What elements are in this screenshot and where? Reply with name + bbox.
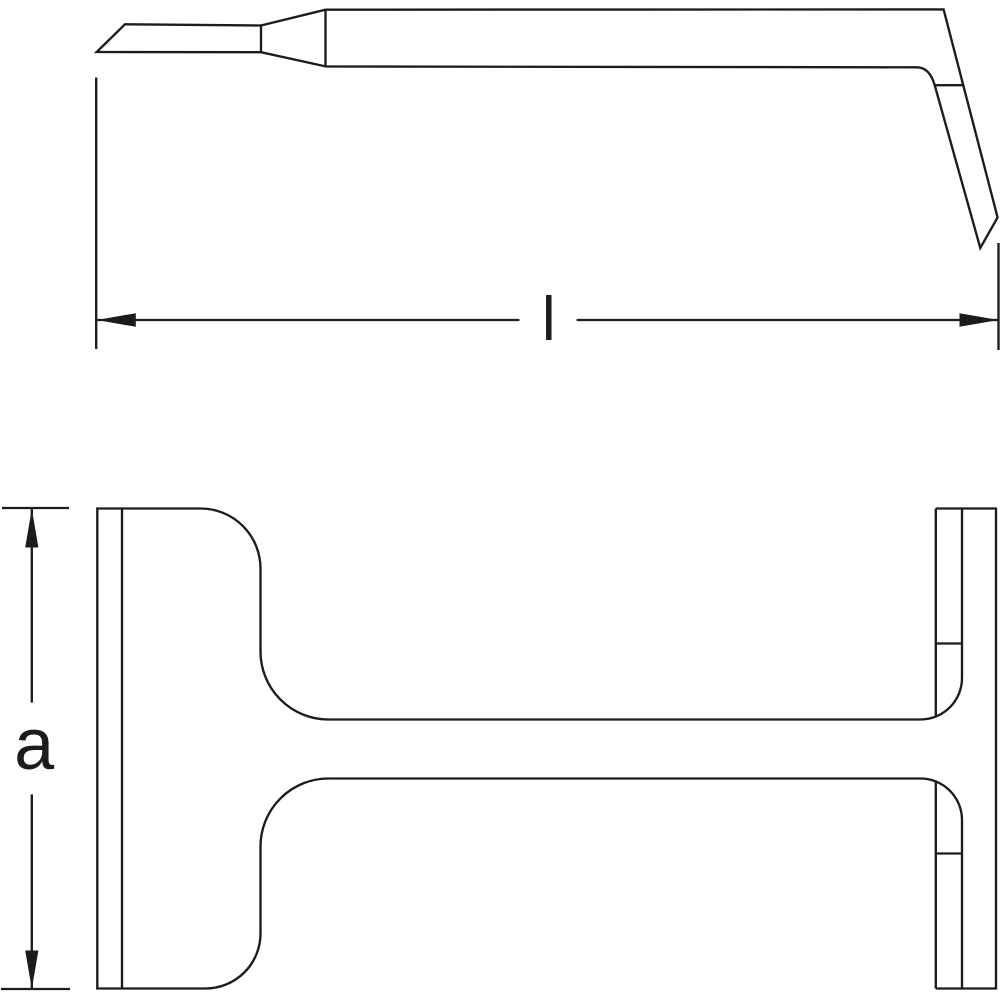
svg-text:a: a [14,705,55,785]
svg-text:l: l [542,285,556,354]
